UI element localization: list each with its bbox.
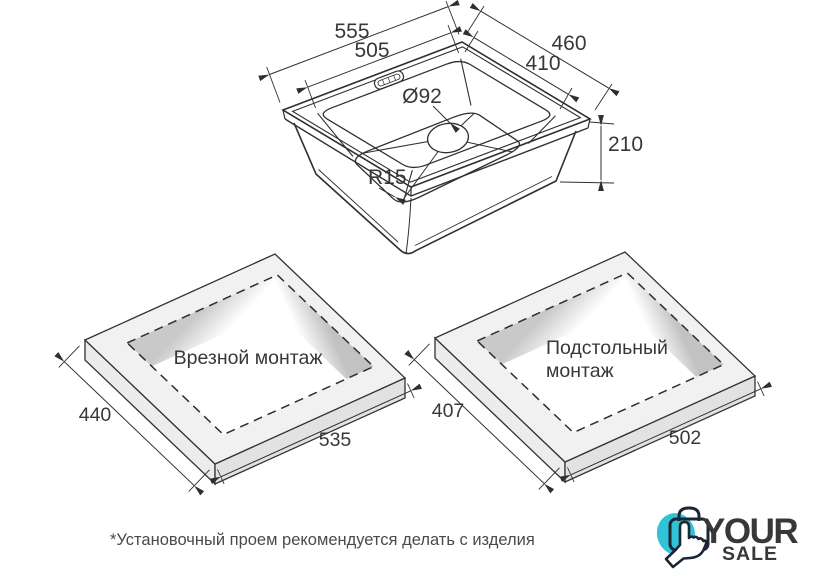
dim-label-drain: Ø92 (402, 85, 442, 108)
dim-label-407: 407 (432, 400, 465, 422)
technical-drawing: 555 505 460 410 210 (0, 0, 840, 573)
undermount-diagram: Подстольный монтаж 407 502 (409, 252, 764, 489)
dim-label-210: 210 (608, 133, 643, 156)
flush-mount-diagram: Врезной монтаж 440 535 (59, 254, 414, 491)
undermount-label-line2: монтаж (546, 360, 614, 382)
sink-drawing: 555 505 460 410 210 (267, 1, 643, 254)
overflow-slot-icon (373, 69, 405, 90)
dim-label-535: 535 (319, 429, 352, 451)
flush-mount-label: Врезной монтаж (174, 347, 323, 369)
dim-label-radius: R15 (368, 166, 407, 189)
dimension-corner-radius: R15 (368, 166, 407, 197)
dim-label-505: 505 (354, 39, 389, 62)
logo-sale: SALE (722, 543, 778, 565)
logo: YOUR SALE (652, 508, 798, 567)
dim-label-410: 410 (525, 52, 560, 75)
dim-label-502: 502 (669, 427, 702, 449)
sink-body-front-corner-edge (406, 198, 411, 254)
undermount-label-line1: Подстольный (546, 337, 668, 359)
footnote: *Установочный проем рекомендуется делать… (110, 531, 535, 549)
basin-opening (323, 62, 550, 168)
dimension-height: 210 (560, 122, 643, 183)
dimension-drain-diameter: Ø92 (402, 85, 450, 123)
sink-dimensions-page: 555 505 460 410 210 (0, 0, 840, 573)
dim-label-440: 440 (79, 404, 112, 426)
